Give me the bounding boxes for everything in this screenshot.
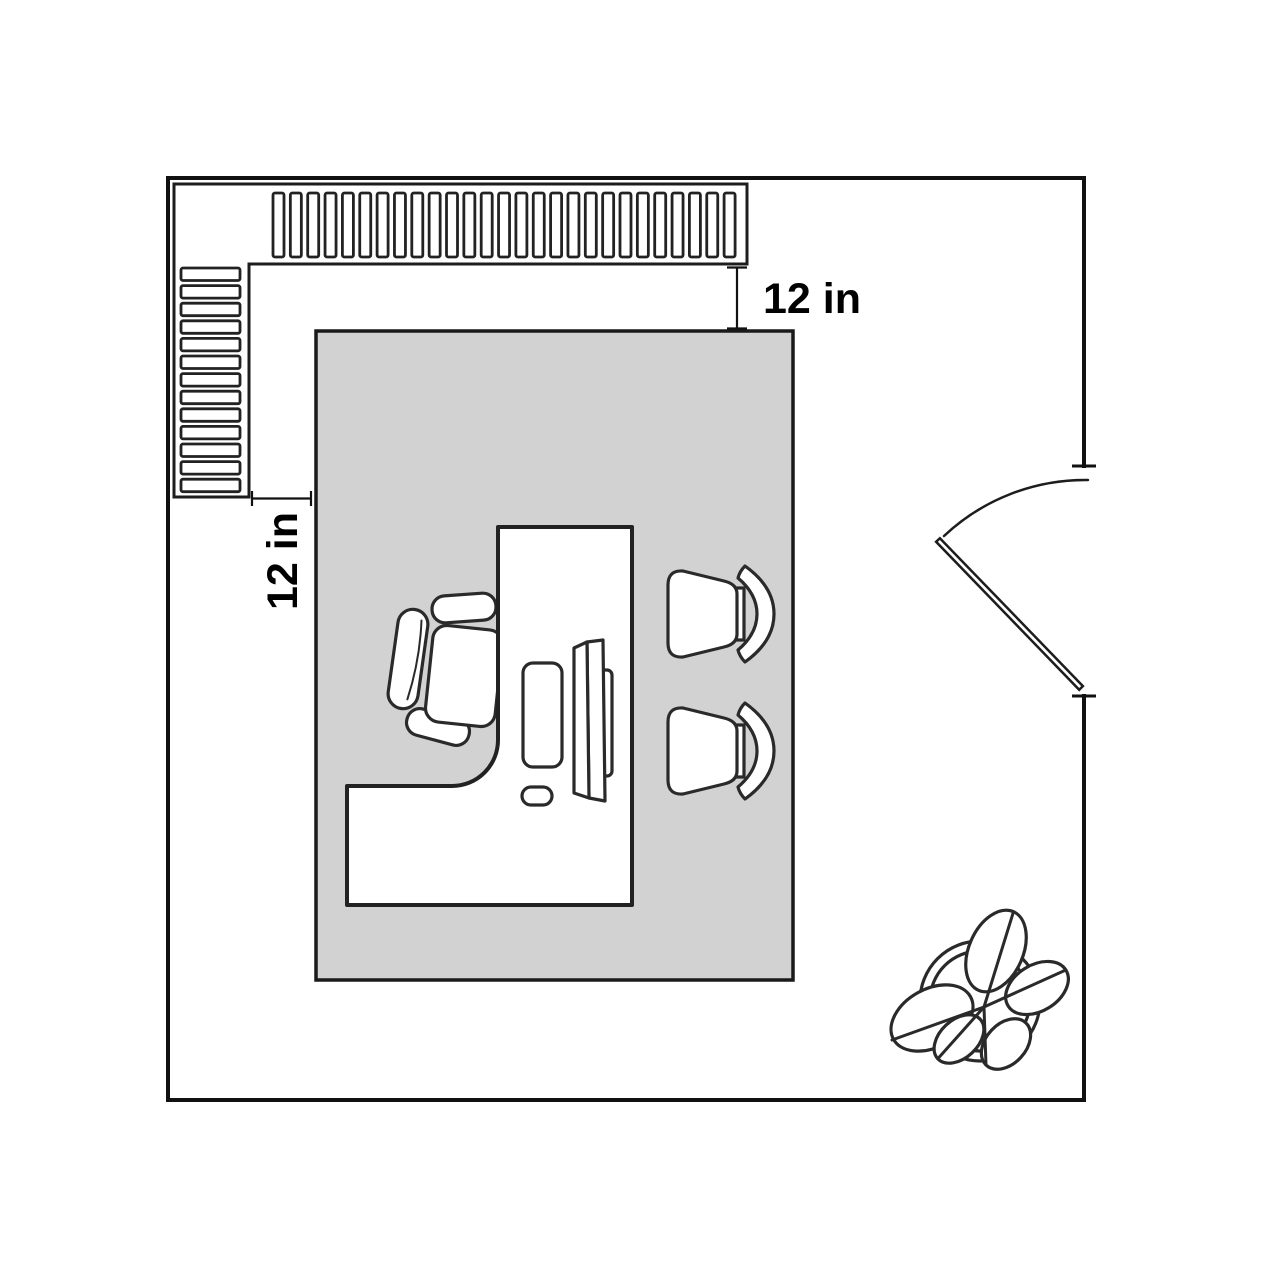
shelf-slat <box>181 444 240 457</box>
dimension-line-left <box>252 491 311 506</box>
shelf-slat <box>516 193 527 257</box>
potted-plant <box>879 901 1078 1079</box>
shelf-slat <box>273 193 284 257</box>
shelf-slat <box>181 462 240 475</box>
shelf-slat <box>181 409 240 422</box>
door <box>936 480 1088 690</box>
dimension-label-top: 12 in <box>763 275 861 323</box>
shelf-slat <box>308 193 319 257</box>
shelf-slat <box>551 193 562 257</box>
shelf-slat <box>342 193 353 257</box>
shelf-slat <box>181 374 240 387</box>
shelf-slat <box>464 193 475 257</box>
office-chair-armrest-top <box>431 592 497 623</box>
shelf-slat <box>181 338 240 351</box>
shelf-slat <box>181 391 240 404</box>
top-shelf-slats <box>273 193 735 257</box>
shelf-slat <box>689 193 700 257</box>
office-chair-seat <box>424 624 504 728</box>
dimension-label-left: 12 in <box>259 512 307 610</box>
door-swing-arc <box>944 480 1088 536</box>
floor-plan-svg: 12 in 12 in <box>0 0 1280 1280</box>
shelf-slat <box>290 193 301 257</box>
shelf-slat <box>447 193 458 257</box>
floor-plan-canvas: 12 in 12 in <box>0 0 1280 1280</box>
shelf-slat <box>181 303 240 316</box>
shelf-slat <box>325 193 336 257</box>
shelf-slat <box>181 426 240 439</box>
shelf-slat <box>585 193 596 257</box>
shelf-slat <box>181 286 240 299</box>
shelf-slat <box>637 193 648 257</box>
dimension-left: 12 in <box>252 491 311 610</box>
shelf-slat <box>620 193 631 257</box>
shelf-slat <box>603 193 614 257</box>
monitor-screen <box>574 642 589 798</box>
shelf-slat <box>181 479 240 492</box>
mouse <box>522 787 552 805</box>
shelf-slat <box>481 193 492 257</box>
shelf-slat <box>181 321 240 334</box>
shelf-slat <box>672 193 683 257</box>
shelf-slat <box>377 193 388 257</box>
keyboard <box>523 663 562 767</box>
shelf-slat <box>568 193 579 257</box>
dimension-line-top <box>727 268 747 329</box>
shelf-slat <box>181 268 240 281</box>
shelf-slat <box>499 193 510 257</box>
shelf-slat <box>655 193 666 257</box>
guest-chair-1 <box>668 566 774 662</box>
shelf-slat <box>533 193 544 257</box>
shelf-slat <box>394 193 405 257</box>
shelf-slat <box>429 193 440 257</box>
door-leaf <box>936 538 1083 690</box>
shelf-slat <box>181 356 240 369</box>
guest-chair-2 <box>668 703 774 799</box>
shelf-slat <box>360 193 371 257</box>
shelf-slat <box>724 193 735 257</box>
shelf-slat <box>707 193 718 257</box>
dimension-top: 12 in <box>727 268 861 329</box>
shelf-slat <box>412 193 423 257</box>
